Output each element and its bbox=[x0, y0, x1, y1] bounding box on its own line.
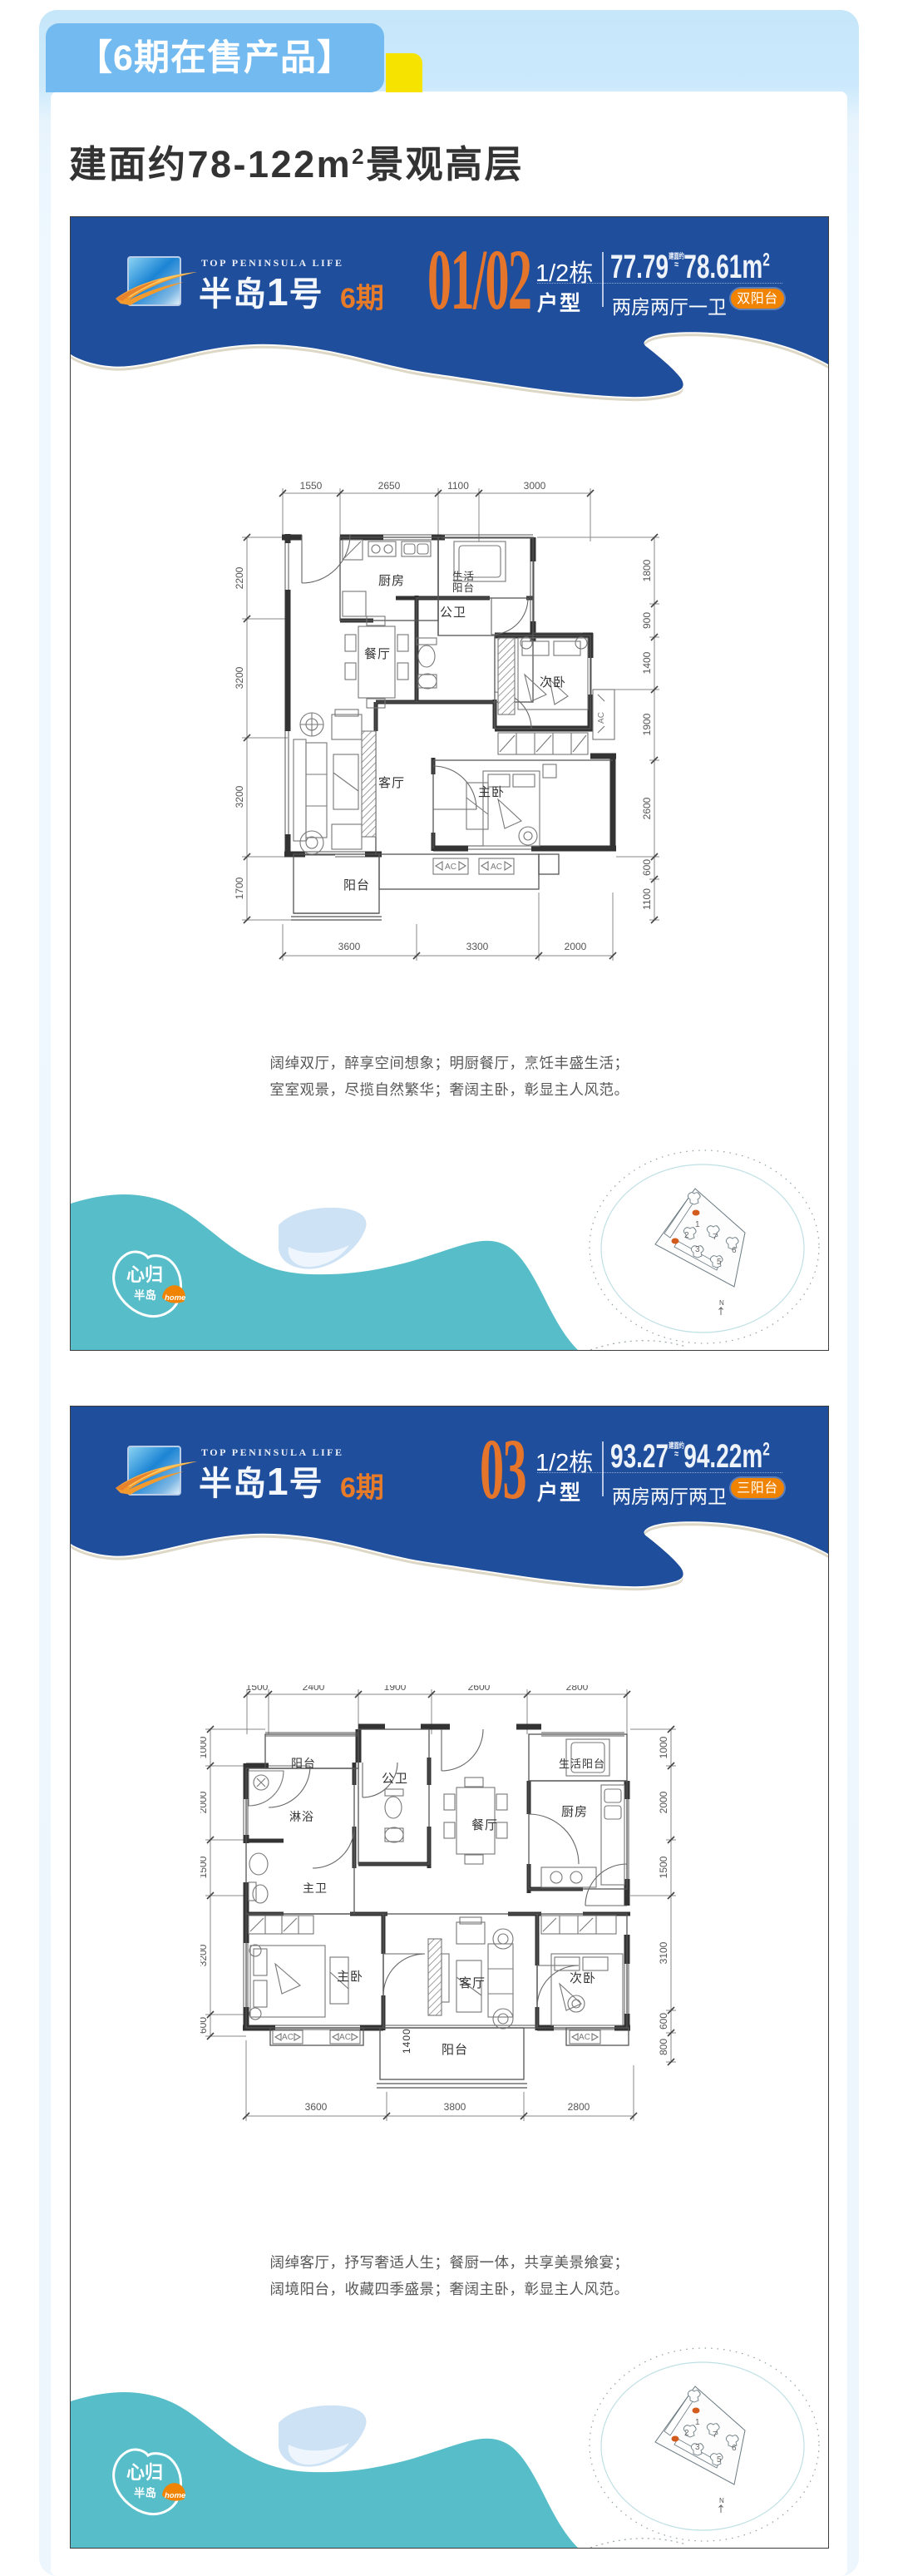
svg-text:1500: 1500 bbox=[658, 1856, 669, 1878]
svg-text:2000: 2000 bbox=[565, 941, 587, 952]
svg-text:2000: 2000 bbox=[200, 1791, 209, 1813]
svg-text:1000: 1000 bbox=[200, 1736, 209, 1758]
svg-text:AC: AC bbox=[597, 712, 606, 724]
svg-text:主卧: 主卧 bbox=[478, 785, 505, 799]
svg-text:1400: 1400 bbox=[401, 2028, 412, 2054]
svg-text:3600: 3600 bbox=[338, 941, 361, 952]
svg-text:公卫: 公卫 bbox=[382, 1772, 408, 1786]
svg-text:厨房: 厨房 bbox=[378, 574, 405, 588]
svg-text:800: 800 bbox=[658, 2039, 669, 2055]
svg-text:厨房: 厨房 bbox=[561, 1805, 588, 1819]
svg-text:客厅: 客厅 bbox=[378, 776, 405, 790]
svg-text:600: 600 bbox=[658, 2013, 669, 2030]
svg-text:home: home bbox=[165, 1293, 186, 1303]
svg-text:2400: 2400 bbox=[303, 1685, 325, 1693]
svg-text:阳台: 阳台 bbox=[343, 878, 370, 892]
svg-text:1500: 1500 bbox=[246, 1685, 269, 1693]
svg-text:餐厅: 餐厅 bbox=[364, 647, 391, 661]
svg-text:900: 900 bbox=[641, 612, 653, 629]
svg-text:2: 2 bbox=[684, 1231, 689, 1240]
svg-text:2200: 2200 bbox=[234, 566, 245, 589]
svg-text:6: 6 bbox=[732, 1246, 737, 1255]
svg-text:主卫: 主卫 bbox=[303, 1881, 328, 1895]
svg-text:1900: 1900 bbox=[384, 1685, 407, 1693]
svg-text:淋浴: 淋浴 bbox=[289, 1810, 314, 1823]
svg-text:2800: 2800 bbox=[566, 1685, 589, 1693]
svg-text:1400: 1400 bbox=[641, 651, 653, 674]
svg-text:1550: 1550 bbox=[300, 480, 323, 492]
svg-text:600: 600 bbox=[641, 859, 653, 876]
svg-text:1800: 1800 bbox=[641, 559, 653, 581]
svg-text:5: 5 bbox=[717, 1258, 722, 1267]
svg-text:生活: 生活 bbox=[452, 571, 475, 582]
svg-text:2000: 2000 bbox=[658, 1791, 669, 1813]
svg-text:1900: 1900 bbox=[641, 713, 653, 735]
svg-text:次卧: 次卧 bbox=[540, 675, 566, 690]
svg-text:3100: 3100 bbox=[658, 1941, 669, 1964]
svg-text:2800: 2800 bbox=[568, 2101, 590, 2113]
svg-text:1100: 1100 bbox=[641, 888, 653, 910]
svg-text:3000: 3000 bbox=[524, 480, 546, 492]
svg-text:3600: 3600 bbox=[305, 2101, 328, 2113]
svg-text:1000: 1000 bbox=[658, 1736, 669, 1758]
svg-text:主卧: 主卧 bbox=[337, 1970, 363, 1984]
svg-text:公卫: 公卫 bbox=[440, 606, 466, 620]
svg-text:3300: 3300 bbox=[466, 941, 489, 952]
svg-text:1500: 1500 bbox=[200, 1856, 209, 1878]
svg-text:3200: 3200 bbox=[234, 666, 245, 689]
svg-text:AC: AC bbox=[445, 863, 456, 872]
svg-text:3800: 3800 bbox=[444, 2101, 466, 2113]
svg-text:2600: 2600 bbox=[468, 1685, 491, 1693]
svg-text:阳台: 阳台 bbox=[442, 2043, 468, 2057]
svg-text:AC: AC bbox=[282, 2033, 294, 2042]
svg-text:AC: AC bbox=[491, 863, 502, 872]
svg-text:生活阳台: 生活阳台 bbox=[559, 1758, 605, 1770]
svg-text:心归: 心归 bbox=[126, 1264, 163, 1285]
svg-text:2600: 2600 bbox=[641, 797, 653, 819]
svg-text:1700: 1700 bbox=[234, 877, 245, 899]
svg-text:1: 1 bbox=[695, 1220, 700, 1229]
svg-text:3200: 3200 bbox=[200, 1944, 209, 1966]
svg-text:3: 3 bbox=[695, 1245, 700, 1254]
svg-text:餐厅: 餐厅 bbox=[471, 1818, 498, 1832]
svg-text:1100: 1100 bbox=[447, 480, 469, 492]
svg-text:AC: AC bbox=[579, 2033, 590, 2042]
svg-text:N: N bbox=[719, 1299, 724, 1307]
svg-text:2650: 2650 bbox=[378, 480, 401, 492]
svg-text:阳台: 阳台 bbox=[452, 581, 475, 594]
svg-text:AC: AC bbox=[339, 2033, 351, 2042]
svg-text:3200: 3200 bbox=[234, 785, 245, 808]
svg-text:600: 600 bbox=[200, 2017, 209, 2034]
svg-text:次卧: 次卧 bbox=[570, 1971, 596, 1985]
svg-text:客厅: 客厅 bbox=[459, 1976, 486, 1990]
svg-text:7: 7 bbox=[713, 1233, 718, 1242]
svg-text:半岛: 半岛 bbox=[134, 1288, 156, 1302]
svg-text:阳台: 阳台 bbox=[291, 1757, 316, 1770]
